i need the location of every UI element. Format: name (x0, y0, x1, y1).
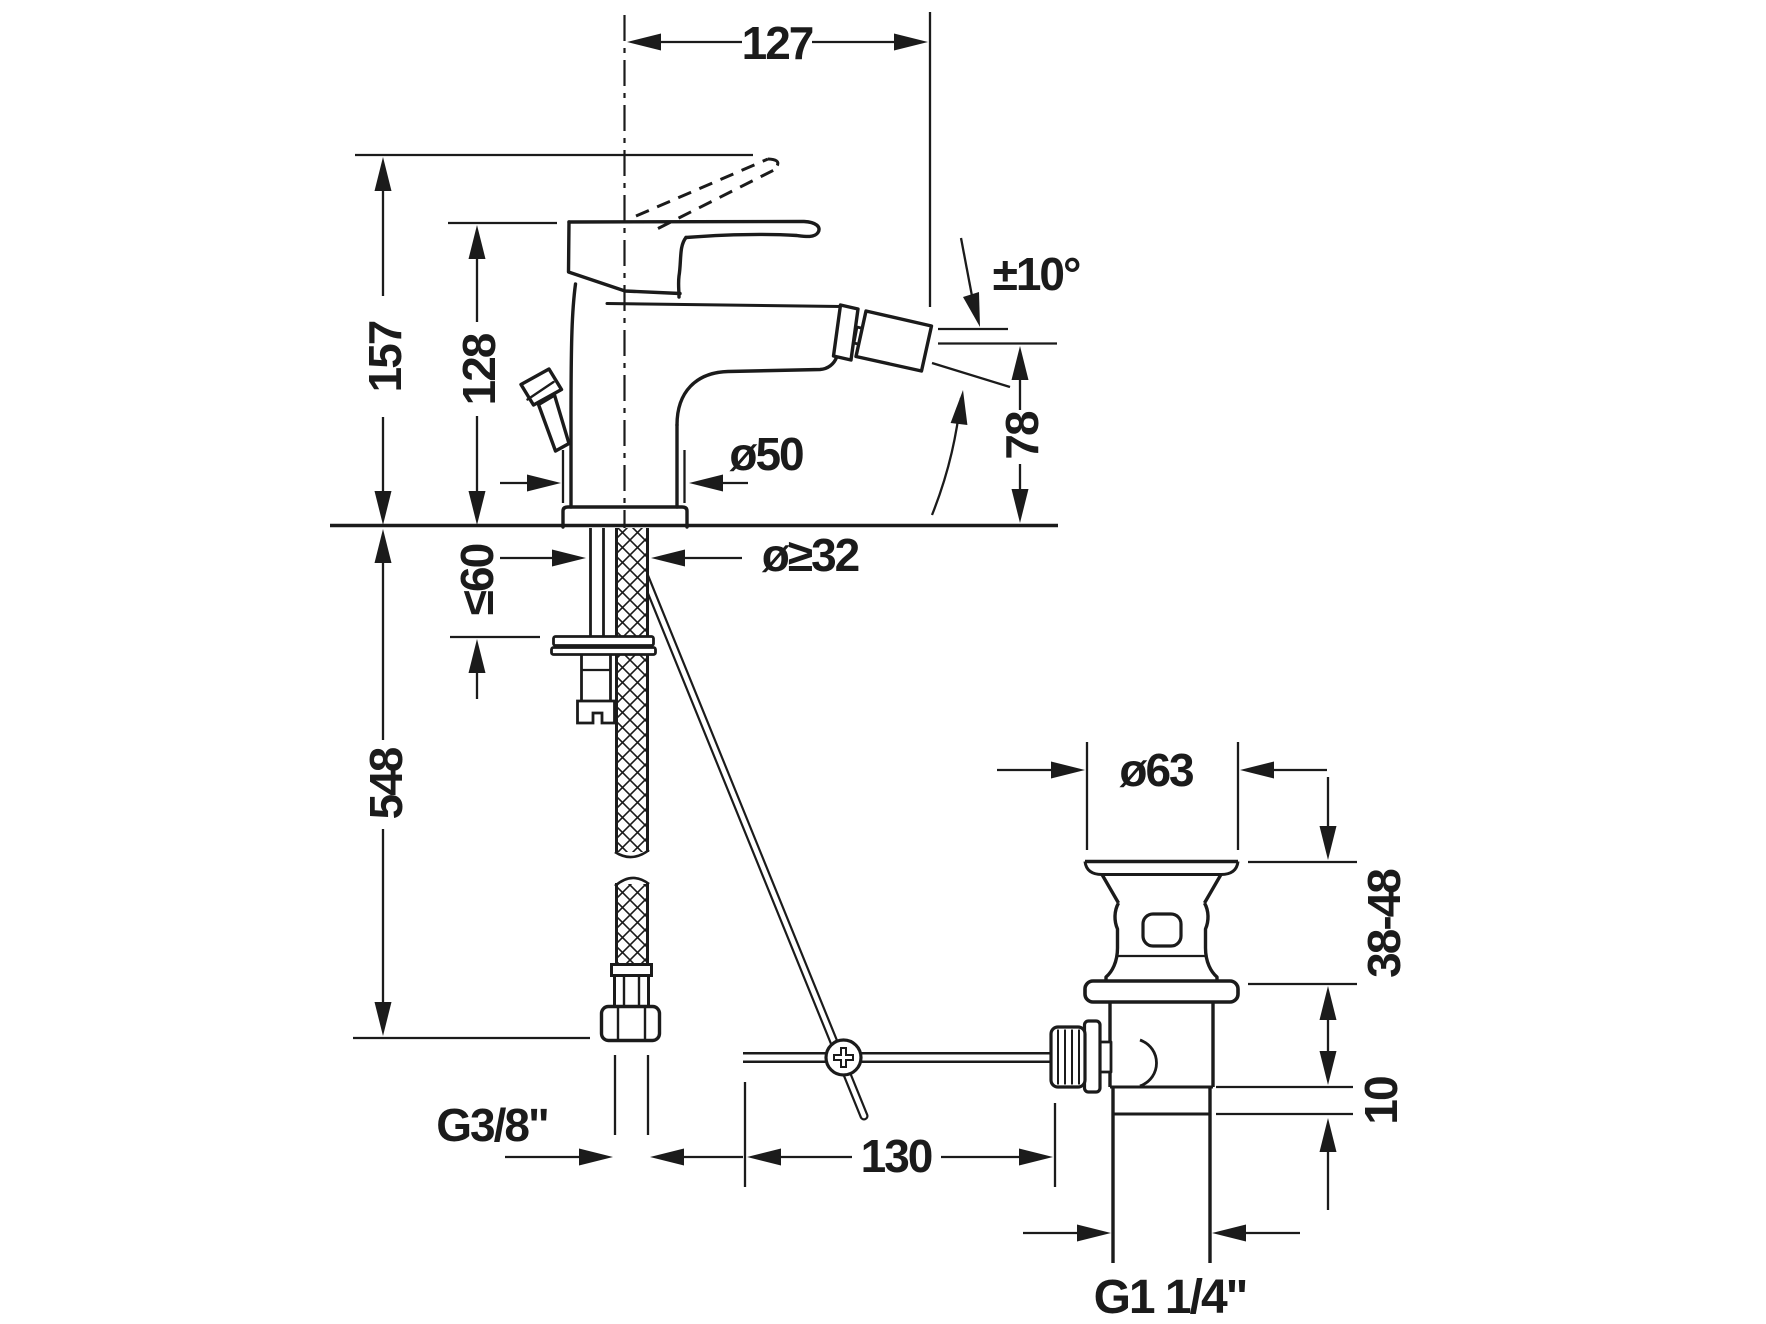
rod-pivot-joint (826, 1040, 861, 1075)
dim-supply-thread: G3/8" (436, 1099, 548, 1151)
dim-clamp-range: 38-48 (1358, 869, 1410, 978)
dim-rod-length: 130 (861, 1130, 932, 1182)
dim-base-diameter: ø50 (729, 428, 803, 480)
dim-collar-height: 10 (1355, 1077, 1407, 1125)
dim-waste-thread: G1 1/4" (1094, 1271, 1247, 1324)
dim-hole-diameter: ø≥32 (762, 529, 859, 581)
waste-flange (1085, 981, 1238, 1002)
dim-height-total: 157 (359, 321, 411, 392)
dim-hose-length: 548 (360, 747, 412, 819)
background (0, 0, 1766, 1324)
dim-max-deck-thickness: ≤60 (451, 544, 503, 615)
dim-reach: 127 (742, 17, 813, 69)
waste-body-slot (1143, 914, 1181, 946)
bidet-mixer-dimension-drawing: 127 157 128 ±10° 78 ø50 ø≥32 ≤60 548 ø63… (0, 0, 1766, 1324)
dim-swivel-angle: ±10° (993, 248, 1080, 300)
braided-hose (615, 528, 649, 965)
dim-spout-height: 78 (996, 411, 1048, 460)
dim-waste-diameter: ø63 (1119, 744, 1193, 796)
g38-hex-nut (602, 1007, 660, 1041)
dim-height-body: 128 (453, 333, 505, 405)
technical-drawing-page: 127 157 128 ±10° 78 ø50 ø≥32 ≤60 548 ø63… (0, 0, 1766, 1324)
